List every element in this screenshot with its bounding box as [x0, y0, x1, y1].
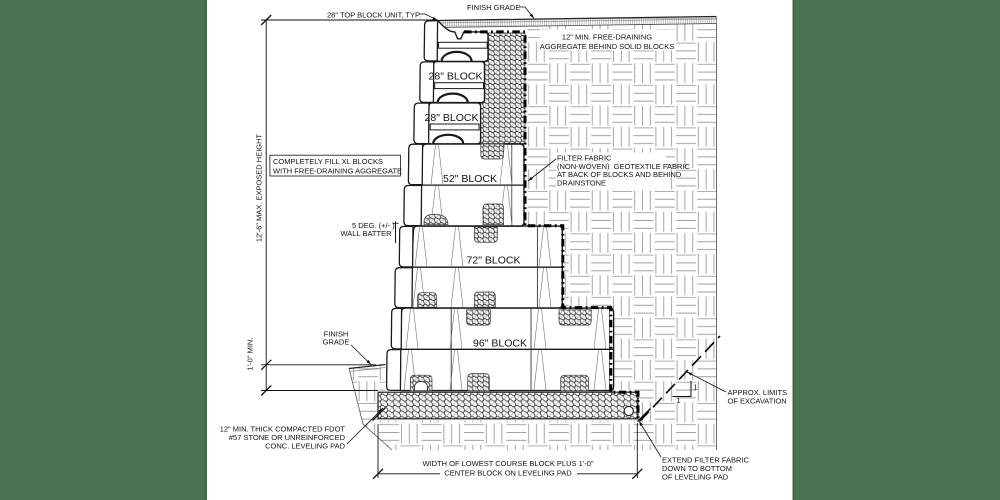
svg-text:28" BLOCK: 28" BLOCK — [429, 71, 483, 83]
svg-text:DRAINSTONE: DRAINSTONE — [557, 178, 606, 187]
svg-text:AGGREGATE BEHIND SOLID BLOCKS: AGGREGATE BEHIND SOLID BLOCKS — [540, 42, 674, 51]
svg-text:GRADE: GRADE — [323, 338, 350, 347]
svg-text:COMPLETELY FILL XL BLOCKS: COMPLETELY FILL XL BLOCKS — [273, 157, 383, 166]
svg-text:52" BLOCK: 52" BLOCK — [443, 173, 497, 185]
svg-text:72" BLOCK: 72" BLOCK — [467, 254, 521, 266]
svg-text:WALL BATTER: WALL BATTER — [341, 229, 393, 238]
svg-text:12'-6" MAX. EXPOSED HEIGHT: 12'-6" MAX. EXPOSED HEIGHT — [255, 133, 264, 242]
svg-text:WITH FREE-DRAINING AGGREGATE: WITH FREE-DRAINING AGGREGATE — [273, 166, 402, 175]
svg-text:12" MIN. FREE-DRAINING: 12" MIN. FREE-DRAINING — [562, 32, 652, 41]
svg-text:FINISH GRADE: FINISH GRADE — [467, 3, 520, 12]
svg-text:28" TOP BLOCK UNIT, TYP.: 28" TOP BLOCK UNIT, TYP. — [327, 11, 421, 20]
svg-text:WIDTH OF LOWEST COURSE BLOCK P: WIDTH OF LOWEST COURSE BLOCK PLUS 1'-0" — [422, 459, 593, 468]
svg-text:CENTER BLOCK ON LEVELING PAD: CENTER BLOCK ON LEVELING PAD — [444, 468, 572, 477]
svg-text:28" BLOCK: 28" BLOCK — [425, 112, 479, 124]
svg-text:OF EXCAVATION: OF EXCAVATION — [728, 397, 787, 406]
svg-text:1'-0" MIN.: 1'-0" MIN. — [246, 338, 255, 371]
svg-text:OF LEVELING PAD: OF LEVELING PAD — [662, 473, 729, 482]
svg-text:96" BLOCK: 96" BLOCK — [473, 337, 527, 349]
svg-text:1: 1 — [677, 396, 681, 405]
svg-text:1: 1 — [694, 383, 698, 392]
svg-text:CONC. LEVELING PAD: CONC. LEVELING PAD — [265, 442, 345, 451]
